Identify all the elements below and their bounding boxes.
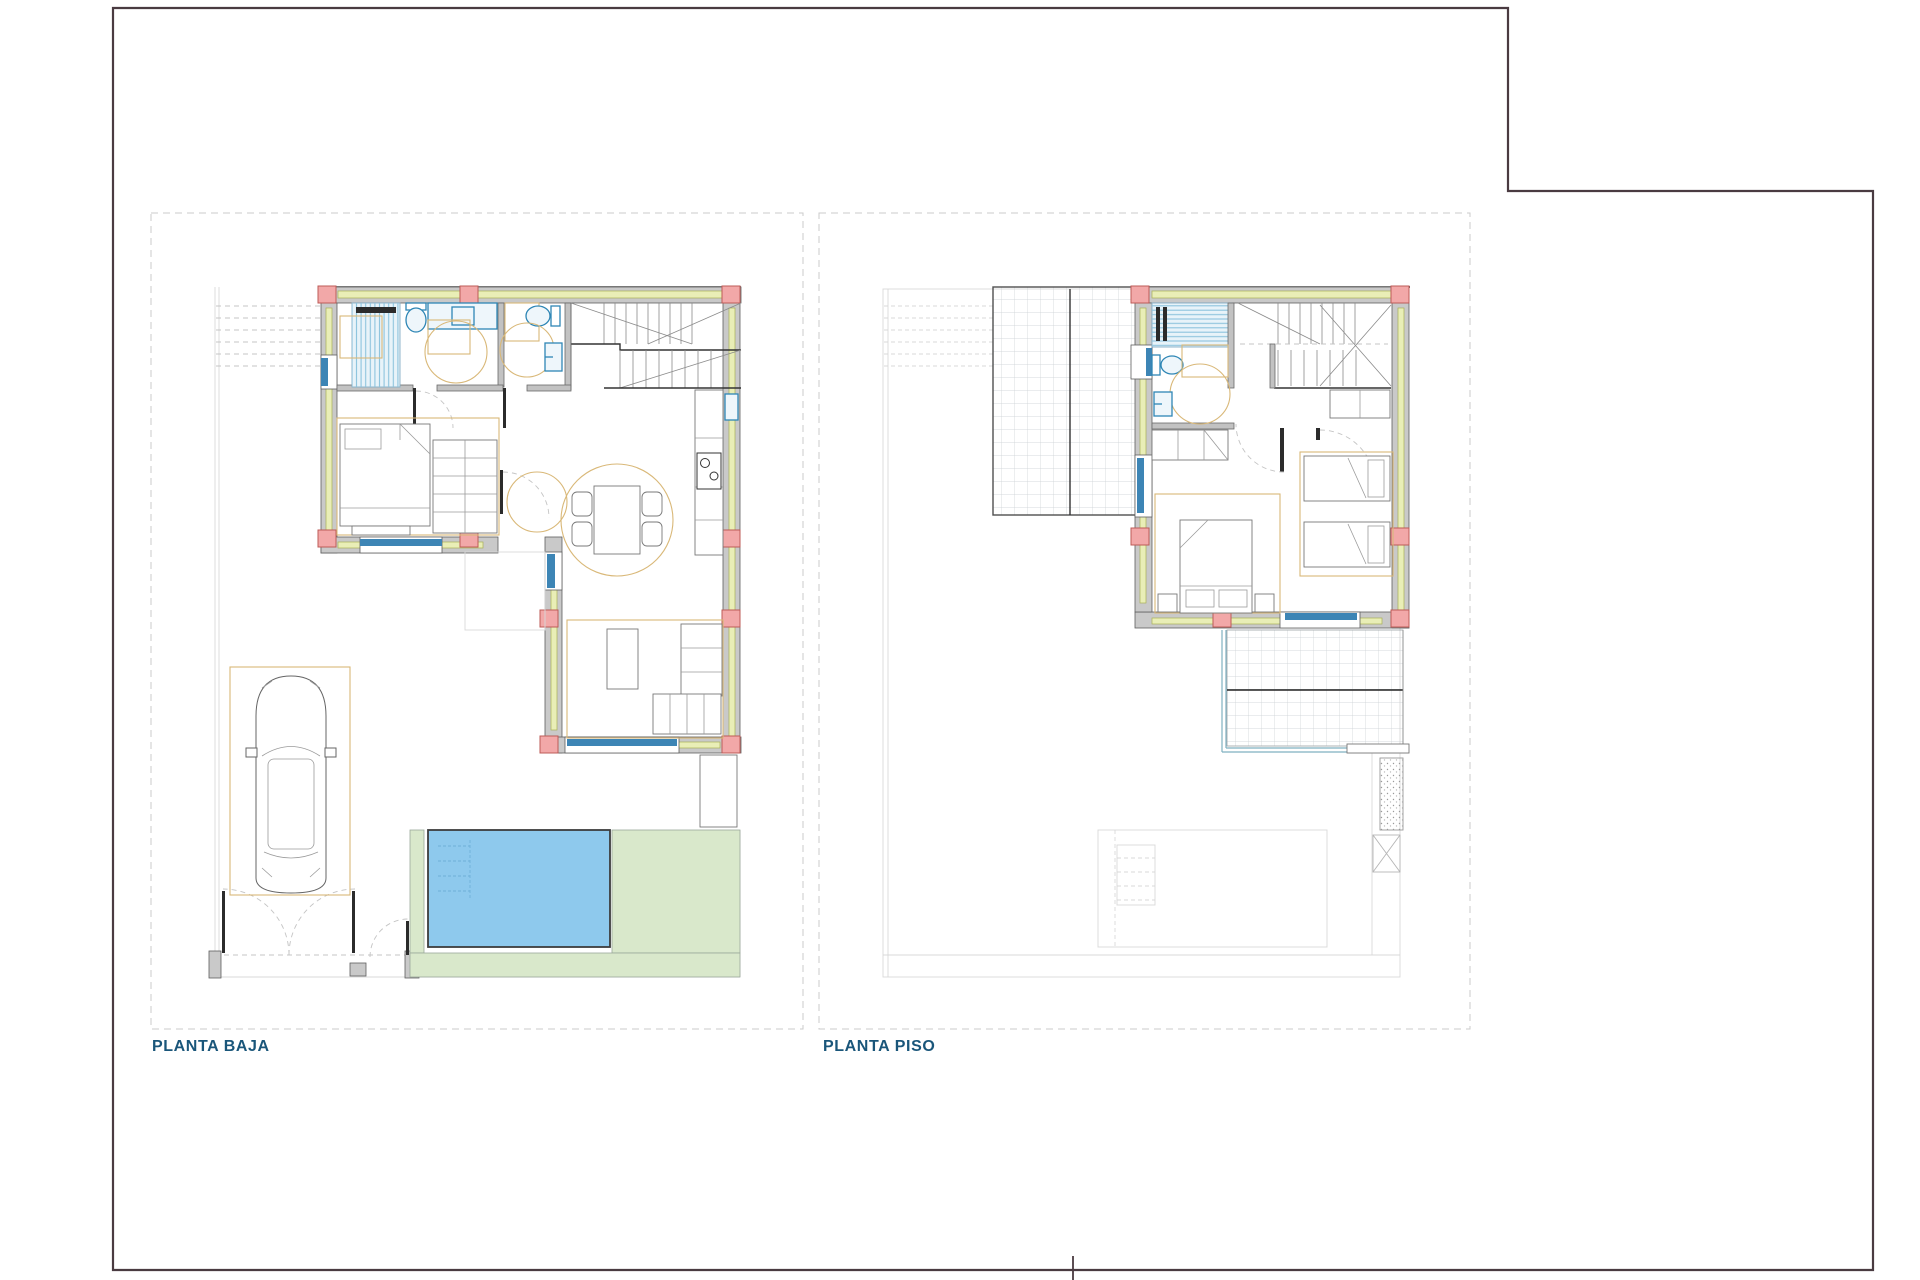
shower-screen [356, 307, 396, 313]
first-floor-plan: PLANTA PISO [823, 286, 1410, 1055]
balcony [1222, 630, 1409, 753]
gf-bedroom [337, 418, 499, 535]
single-bed [1304, 456, 1390, 501]
chair [642, 492, 662, 516]
dining-table [594, 486, 640, 554]
skylight-box [1373, 835, 1400, 872]
gf-staircase [571, 303, 741, 390]
ff-bedroom-2 [1300, 452, 1393, 576]
chair [642, 522, 662, 546]
balcony-step [1347, 744, 1409, 753]
outdoor-step [700, 755, 737, 827]
planta-baja-label: PLANTA BAJA [152, 1038, 270, 1055]
kitchen-window [725, 394, 738, 420]
car-top-view [246, 676, 336, 893]
drawing-sheet: PLANTA BAJA [0, 0, 1920, 1280]
window-dining [547, 554, 555, 588]
gravel-strip [1380, 758, 1403, 830]
carport [230, 667, 350, 895]
double-bed [1180, 520, 1252, 613]
gf-dining [507, 464, 673, 576]
window-bath [1146, 348, 1152, 376]
deck-strip-left [410, 830, 424, 953]
window-left [321, 358, 328, 386]
pool-outline-below [1098, 830, 1327, 947]
ground-floor-plan: PLANTA BAJA [152, 286, 741, 1055]
toilet [406, 308, 426, 332]
window-bedroom-left [1137, 458, 1144, 513]
window-balcony [1285, 613, 1357, 620]
chair [572, 492, 592, 516]
coffee-table [607, 629, 638, 689]
roof-terrace [993, 287, 1137, 515]
gf-bathroom-1 [340, 303, 497, 387]
gf-bathroom-2 [500, 303, 562, 377]
nightstand [1255, 594, 1274, 612]
toilet-tank [551, 306, 560, 326]
swimming-pool [428, 830, 610, 947]
page-border [113, 8, 1873, 1280]
pool-area [410, 755, 740, 977]
ff-bedroom-1 [1155, 494, 1280, 613]
porch-outline [465, 552, 545, 630]
ff-bathroom [1152, 303, 1234, 429]
nightstand [1158, 594, 1177, 612]
stove [697, 453, 721, 489]
bench [352, 526, 410, 535]
gf-living-room [567, 620, 723, 738]
floor-plan-canvas: PLANTA BAJA [0, 0, 1920, 1280]
sofa [681, 624, 722, 696]
chair [572, 522, 592, 546]
deck-strip-bottom [410, 953, 740, 977]
window-living [567, 739, 677, 746]
ff-wardrobe [1152, 430, 1228, 460]
entrance-gates [222, 889, 409, 957]
toilet-tank [1152, 355, 1160, 375]
single-bed [1304, 522, 1390, 567]
window-bedroom [360, 539, 442, 546]
deck-strip-right [612, 830, 740, 953]
planta-piso-label: PLANTA PISO [823, 1038, 935, 1055]
double-bed [340, 424, 430, 526]
